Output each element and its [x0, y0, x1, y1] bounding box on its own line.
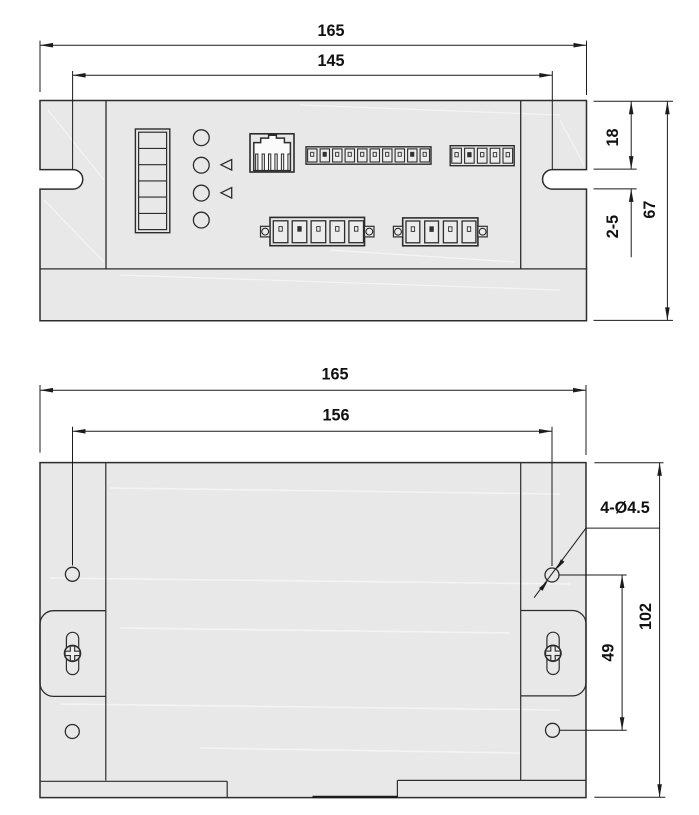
svg-text:49: 49	[599, 644, 617, 662]
svg-text:165: 165	[317, 22, 344, 40]
svg-text:2-5: 2-5	[604, 215, 622, 238]
svg-text:145: 145	[317, 52, 344, 70]
svg-text:165: 165	[321, 366, 348, 384]
svg-text:18: 18	[604, 128, 622, 146]
svg-text:4-Ø4.5: 4-Ø4.5	[600, 499, 650, 517]
svg-text:102: 102	[637, 603, 655, 630]
svg-text:156: 156	[322, 407, 349, 425]
svg-text:67: 67	[641, 201, 659, 219]
